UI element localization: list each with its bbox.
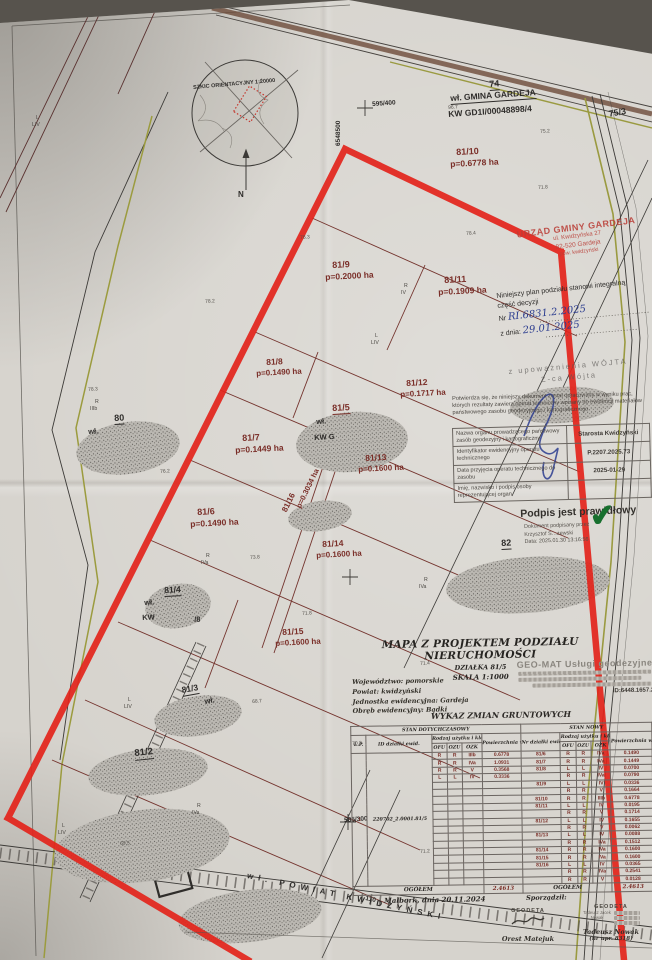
redacted-regon-bar [532,682,651,688]
map-label: /8 [194,616,201,624]
map-label: IVa [201,561,208,566]
cert-row-value: 2025-01-29 [568,460,651,481]
map-label: 71.8 [302,611,312,617]
map-label: 81/12 [406,378,428,388]
col-ozu-old: OZU [447,743,462,752]
surveyor-stamp-1: GEODETA Orest Matejuk [497,908,559,943]
col-nr: Nr działki ewid. [521,733,560,752]
geodeta1-name: Orest Matejuk [497,935,559,943]
map-label: 81/10 [456,147,479,157]
total-label-new: OGÓŁEM [523,883,612,893]
col-ofu-old: OFU [432,743,447,752]
map-label: wł. [144,598,154,606]
map-label: wł. [204,696,215,705]
redacted-contact-bar [518,676,641,682]
map-label: 81/9 [332,260,350,270]
map-label: p=0.1909 ha [438,285,487,296]
map-label: IVa [192,811,199,816]
map-label: 68.7 [252,699,262,705]
map-label: L [375,334,378,339]
land-changes-table: STAN DOTYCHCZASOWY STAN NOWY L.P. ID dzi… [350,722,652,896]
scanned-map-document: SZKIC ORIENTACYJNY 1:20000N75/374wł. GMI… [0,0,652,960]
map-label: IV [401,291,406,296]
col-area-new: Powierzchnia w ha [610,731,652,750]
map-label: L [128,698,131,703]
map-label: R [404,284,408,289]
map-label: 76.2 [160,469,170,475]
map-label: 81/13 [365,453,387,463]
cell-id: 220702_2.0001.81/5 [366,752,433,886]
col-lp: L.P. [351,735,366,753]
cert-row-value [568,479,651,500]
map-label: 78.4 [466,231,476,237]
map-label: p=0.2000 ha [325,270,374,281]
map-label: 81/2 [134,747,154,760]
redacted-stamp-details [614,910,640,926]
map-label: 81/7 [242,433,260,443]
map-label: LIV [371,341,379,346]
geodeta2-license: (nr upr. 8318) [572,936,650,942]
map-label: 76.3 [300,235,310,241]
map-label: 82 [501,538,512,550]
col-id: ID działki ewid. [366,734,432,753]
map-label: 69.5 [120,841,130,847]
cert-row-label: Imię, nazwisko i podpis osoby reprezentu… [454,481,569,502]
map-label: L [36,116,39,121]
decision-date-label: z dnia: [500,328,521,337]
surveyor-stamp-2: GEODETA Tadeusz Jacek Nowak Tadeusz Nowa… [572,904,650,942]
signature-valid-check-icon: ✔ [588,497,617,534]
map-label: 81/5 [332,403,350,415]
map-label: LIV [58,831,66,836]
cert-row-value: P.2207.2025.73 [567,442,650,463]
map-label: KW G [314,433,335,442]
map-label: 73.8 [250,555,260,561]
tree-cluster-speckle [50,800,233,893]
col-ozk-new: OZK [591,741,611,750]
map-label: R [424,578,428,583]
total-value-old: 2.4613 [484,884,523,894]
map-label: LIV [32,123,40,128]
map-label: LIV [124,705,132,710]
map-label: 81/6 [197,507,215,517]
map-label: N [238,191,244,199]
paper-sheet: SZKIC ORIENTACYJNY 1:20000N75/374wł. GMI… [0,0,652,960]
map-label: 75.2 [540,129,550,135]
geodeta2-name: Tadeusz Nowak [572,928,650,936]
map-label: 80 [114,413,125,425]
map-label: 78.2 [205,299,215,305]
map-label: KW [142,613,155,621]
col-ozk-old: OZK [462,743,482,752]
map-label: 96.7 [448,105,458,111]
decision-nr-label: Nr [499,315,507,323]
geomat-name: GEO-MAT Usługi geodezyjne [512,657,652,670]
map-label: 81/11 [444,275,466,285]
tree-cluster-speckle [152,690,245,742]
cert-row-value: Starosta Kwidzyński [567,423,650,444]
map-label: L [62,824,65,829]
map-label: 78.3 [88,387,98,393]
map-label: 81/4 [164,585,181,596]
land-changes-table-block: WYKAZ ZMIAN GRUNTOWYCH STAN DOTYCHCZASOW… [350,708,652,896]
map-label: R [206,554,210,559]
geodeta1-signature-squiggle [508,914,548,928]
total-value-new: 2.4613 [612,882,652,892]
map-label: p=0.6778 ha [450,157,499,168]
north-arrow [243,150,249,190]
geodeta2-stamp-inner-name: Tadeusz Jacek Nowak [582,910,612,926]
place-and-date: Malbork, dnia 20.11.2024 [384,894,486,905]
certification-table: Nazwa organu prowadzącego państwowy zasó… [452,423,652,503]
map-label: 81/15 [282,627,304,637]
map-label: p=0.1490 ha [190,517,239,528]
col-area-old: Powierzchnia w ha [482,733,522,752]
col-ozu-new: OZU [576,741,591,750]
signature-details: Dokument podpisany przezKrzysztof S…żews… [524,522,590,547]
map-label: 81/14 [322,539,344,549]
map-label: IIIb [90,407,97,412]
map-label: 81/8 [266,357,283,366]
map-label: 6548500 [336,121,343,146]
map-label: 71.8 [538,185,548,191]
road-lines-topleft [0,0,168,760]
map-label: wł. [316,417,326,425]
map-label: wł. [88,427,98,435]
map-label: p=0.1449 ha [235,443,284,454]
map-label: R [95,400,99,405]
map-label: IVa [419,585,426,590]
col-ofu-new: OFU [560,741,575,750]
prepared-by-label: Sporządził: [526,893,567,902]
map-label: R [197,804,201,809]
geomat-company-stamp: GEO-MAT Usługi geodezyjne ID:6448.1657.2… [512,657,652,696]
